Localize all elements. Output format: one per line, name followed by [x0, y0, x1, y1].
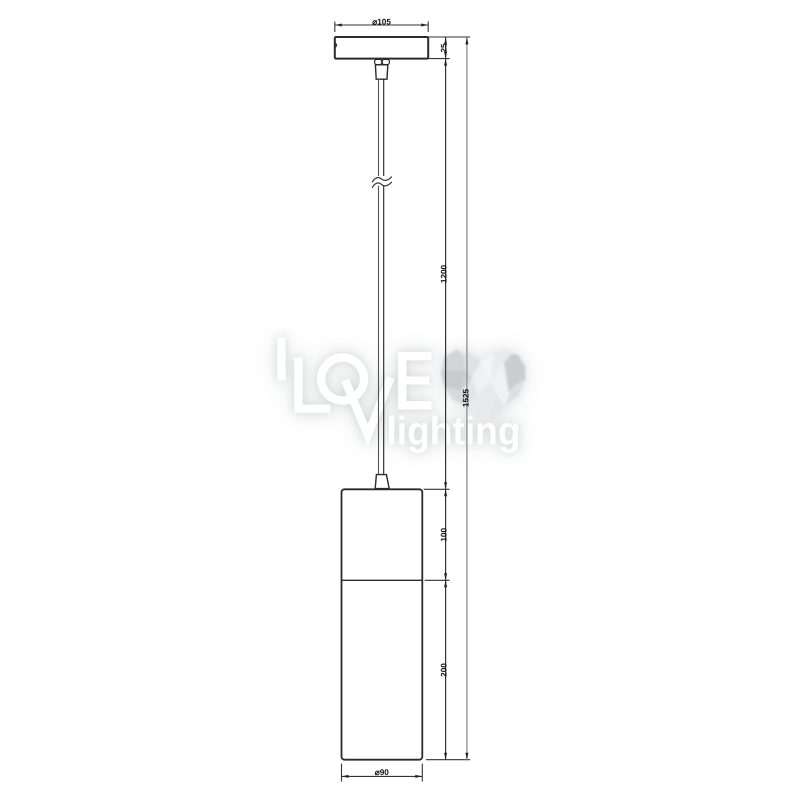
svg-text:1200: 1200: [439, 264, 448, 283]
svg-text:1525: 1525: [461, 388, 470, 407]
svg-text:⌀105: ⌀105: [372, 17, 391, 26]
svg-text:100: 100: [439, 528, 448, 542]
svg-text:lighting: lighting: [387, 410, 521, 454]
svg-text:25: 25: [439, 43, 448, 53]
svg-text:⌀90: ⌀90: [375, 768, 389, 777]
svg-text:200: 200: [439, 663, 448, 677]
